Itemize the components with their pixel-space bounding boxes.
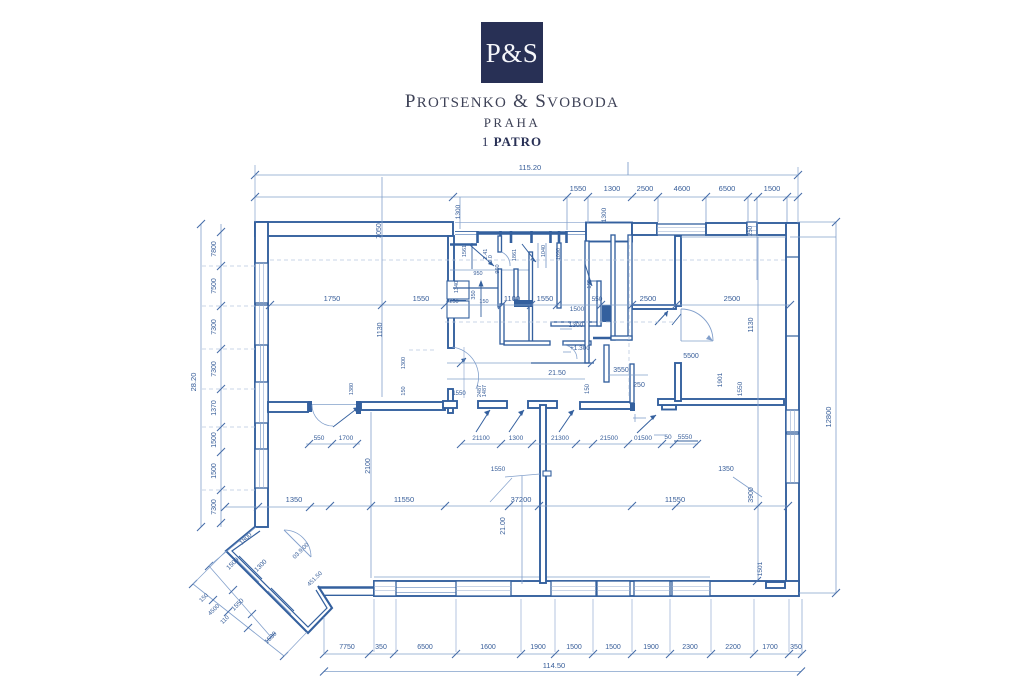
- svg-text:1300: 1300: [253, 558, 268, 573]
- svg-text:11550: 11550: [394, 495, 414, 504]
- svg-text:7300: 7300: [211, 319, 218, 335]
- svg-text:6500: 6500: [417, 644, 433, 651]
- svg-text:1550: 1550: [452, 391, 466, 397]
- svg-text:2500: 2500: [724, 294, 741, 303]
- svg-text:1700: 1700: [339, 435, 354, 442]
- svg-text:+1.300: +1.300: [570, 345, 590, 352]
- svg-text:21100: 21100: [472, 435, 490, 442]
- svg-text:250: 250: [449, 299, 458, 305]
- svg-text:1700: 1700: [762, 644, 778, 651]
- svg-text:114.50: 114.50: [543, 661, 565, 670]
- svg-text:350: 350: [375, 644, 387, 651]
- svg-text:0.0: 0.0: [488, 255, 494, 263]
- svg-text:1130: 1130: [377, 322, 384, 337]
- svg-text:5550: 5550: [678, 434, 693, 441]
- svg-text:350: 350: [790, 644, 802, 651]
- svg-text:1040: 1040: [541, 245, 547, 257]
- svg-text:1380: 1380: [349, 383, 355, 395]
- svg-text:2500: 2500: [637, 184, 654, 193]
- svg-text:1500: 1500: [570, 306, 585, 313]
- svg-text:28.20: 28.20: [189, 373, 198, 392]
- svg-text:1340: 1340: [454, 281, 460, 293]
- svg-text:250: 250: [633, 382, 645, 389]
- svg-text:1487: 1487: [482, 385, 488, 397]
- svg-text:7300: 7300: [211, 499, 218, 515]
- svg-text:1090: 1090: [556, 248, 562, 260]
- svg-text:960: 960: [495, 264, 501, 273]
- svg-text:1550: 1550: [737, 381, 744, 396]
- svg-text:3550: 3550: [613, 367, 629, 374]
- svg-text:1750: 1750: [324, 294, 341, 303]
- svg-text:1300: 1300: [455, 204, 462, 219]
- svg-text:21500: 21500: [600, 435, 618, 442]
- svg-text:550: 550: [314, 435, 325, 442]
- svg-text:150: 150: [401, 386, 407, 395]
- svg-text:1500: 1500: [605, 644, 621, 651]
- svg-text:11550: 11550: [665, 495, 685, 504]
- svg-text:1561: 1561: [462, 245, 468, 257]
- svg-text:1300: 1300: [401, 357, 407, 369]
- svg-text:2300: 2300: [682, 644, 698, 651]
- svg-text:1370: 1370: [211, 400, 218, 416]
- svg-text:1300: 1300: [569, 322, 584, 329]
- svg-text:350: 350: [471, 290, 477, 299]
- svg-text:1550: 1550: [570, 184, 587, 193]
- svg-text:21300: 21300: [551, 435, 569, 442]
- svg-text:2500: 2500: [640, 294, 657, 303]
- svg-text:7750: 7750: [339, 644, 355, 651]
- svg-text:150: 150: [585, 383, 591, 394]
- svg-text:7800: 7800: [211, 241, 218, 257]
- svg-text:7500: 7500: [211, 278, 218, 294]
- svg-text:03.9.00: 03.9.00: [292, 542, 311, 561]
- svg-text:1350: 1350: [718, 466, 734, 473]
- svg-text:1500: 1500: [566, 644, 582, 651]
- svg-text:1500: 1500: [211, 432, 218, 448]
- svg-text:1501: 1501: [757, 561, 764, 576]
- svg-text:1300: 1300: [509, 435, 524, 442]
- svg-text:1500: 1500: [211, 463, 218, 479]
- svg-text:1550: 1550: [537, 294, 554, 303]
- svg-text:6500: 6500: [719, 184, 736, 193]
- svg-text:7300: 7300: [211, 361, 218, 377]
- svg-text:1500: 1500: [764, 184, 781, 193]
- svg-text:110: 110: [220, 614, 231, 625]
- svg-text:950: 950: [473, 271, 482, 277]
- svg-text:250: 250: [748, 225, 754, 236]
- svg-text:1100: 1100: [504, 294, 520, 303]
- svg-text:150: 150: [199, 592, 211, 604]
- svg-text:12800: 12800: [824, 407, 833, 428]
- svg-text:5500: 5500: [683, 353, 699, 360]
- svg-text:1900: 1900: [530, 644, 546, 651]
- svg-text:1350: 1350: [286, 495, 303, 504]
- svg-text:1600: 1600: [480, 644, 496, 651]
- svg-text:21.50: 21.50: [548, 370, 566, 377]
- svg-text:01500: 01500: [634, 435, 652, 442]
- svg-text:3900: 3900: [748, 487, 755, 503]
- svg-text:1550: 1550: [413, 294, 430, 303]
- svg-text:1300: 1300: [601, 207, 608, 222]
- svg-text:21.00: 21.00: [500, 517, 507, 535]
- svg-text:1550: 1550: [491, 466, 506, 473]
- svg-text:1861: 1861: [512, 249, 518, 261]
- svg-text:1900: 1900: [643, 644, 659, 651]
- svg-text:550: 550: [592, 296, 603, 303]
- svg-text:2100: 2100: [365, 458, 372, 474]
- svg-text:451.50: 451.50: [307, 570, 325, 588]
- svg-text:1800: 1800: [238, 531, 253, 546]
- svg-text:7050: 7050: [376, 223, 383, 239]
- svg-text:150: 150: [479, 299, 488, 305]
- svg-text:1550: 1550: [230, 597, 245, 612]
- svg-text:1130: 1130: [748, 317, 755, 332]
- svg-text:1530: 1530: [263, 630, 278, 645]
- svg-text:115.20: 115.20: [519, 163, 541, 172]
- svg-text:1901: 1901: [717, 372, 724, 387]
- svg-text:1300: 1300: [604, 184, 621, 193]
- svg-text:2200: 2200: [725, 644, 741, 651]
- svg-text:150: 150: [587, 279, 593, 288]
- svg-text:4600: 4600: [674, 184, 691, 193]
- svg-text:37200: 37200: [511, 495, 532, 504]
